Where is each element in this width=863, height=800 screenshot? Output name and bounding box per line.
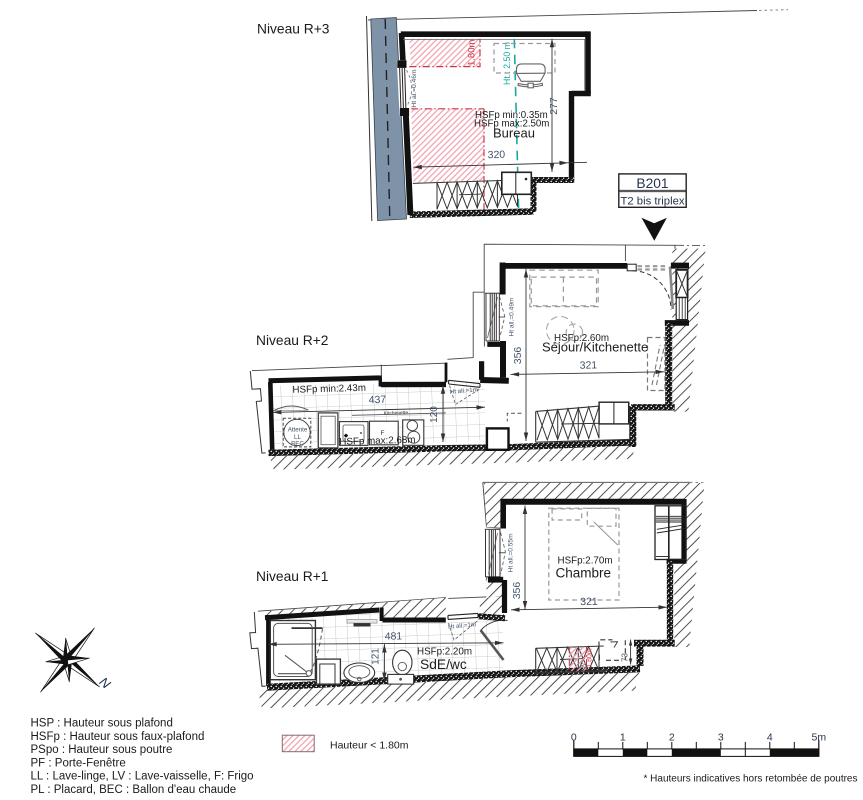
svg-text:277: 277 [548, 97, 560, 115]
svg-text:LL : Lave-linge, LV : Lave-vai: LL : Lave-linge, LV : Lave-vaisselle, F:… [31, 771, 254, 783]
svg-text:PF : Porte-Fenêtre: PF : Porte-Fenêtre [31, 757, 126, 769]
svg-text:B201: B201 [636, 176, 668, 191]
svg-text:Niveau R+1: Niveau R+1 [256, 569, 328, 584]
svg-text:321: 321 [580, 359, 598, 371]
svg-text:121: 121 [371, 648, 382, 665]
svg-text:73: 73 [620, 653, 629, 662]
svg-text:Attente: Attente [288, 426, 308, 433]
svg-text:5m: 5m [812, 732, 827, 744]
svg-text:321: 321 [580, 596, 598, 608]
svg-text:HSFp : Hauteur sous faux-plafo: HSFp : Hauteur sous faux-plafond [31, 731, 205, 743]
svg-text:Ht all.=0.55m: Ht all.=0.55m [508, 533, 515, 573]
svg-text:120: 120 [429, 406, 440, 423]
svg-text:Niveau R+3: Niveau R+3 [257, 22, 330, 37]
svg-text:HSP : Hauteur sous plafond: HSP : Hauteur sous plafond [31, 718, 173, 730]
svg-text:Kitchenette: Kitchenette [384, 410, 409, 417]
svg-text:320: 320 [487, 149, 505, 161]
svg-text:PL : Placard, BEC : Ballon d'e: PL : Placard, BEC : Ballon d'eau chaude [31, 784, 237, 796]
svg-text:HSFp max:2.68m: HSFp max:2.68m [339, 435, 416, 448]
svg-text:356: 356 [511, 582, 523, 600]
svg-text:1: 1 [620, 732, 626, 744]
svg-text:356: 356 [512, 347, 524, 365]
svg-text:152: 152 [577, 663, 588, 670]
svg-text:1.80m: 1.80m [587, 648, 594, 668]
svg-text:HSFp:2.20m: HSFp:2.20m [417, 647, 472, 658]
svg-text:Niveau R+2: Niveau R+2 [256, 333, 328, 348]
svg-text:Bureau: Bureau [493, 126, 535, 141]
svg-text:PSpo : Hauteur sous poutre: PSpo : Hauteur sous poutre [31, 744, 173, 756]
svg-text:Hauteur < 1.80m: Hauteur < 1.80m [330, 740, 409, 752]
svg-text:SdE/wc: SdE/wc [420, 657, 467, 672]
svg-text:4: 4 [767, 732, 773, 744]
svg-text:Ht al.=0.46m: Ht al.=0.46m [411, 69, 418, 108]
svg-text:BEC: BEC [291, 440, 304, 447]
svg-text:437: 437 [369, 394, 387, 406]
svg-text:Chambre: Chambre [556, 566, 612, 581]
svg-text:0: 0 [571, 732, 577, 744]
svg-text:3: 3 [718, 732, 724, 744]
svg-text:2: 2 [669, 732, 675, 744]
svg-text:T2 bis triplex: T2 bis triplex [620, 195, 684, 207]
svg-text:Ht all.=0.49m: Ht all.=0.49m [509, 297, 516, 337]
svg-text:HSFp min:2.43m: HSFp min:2.43m [292, 383, 366, 396]
svg-text:Ht.: 2.50 m: Ht.: 2.50 m [502, 42, 512, 85]
svg-text:481: 481 [385, 630, 403, 642]
svg-text:Séjour/Kitchenette: Séjour/Kitchenette [542, 339, 648, 354]
svg-text:* Hauteurs indicatives hors re: * Hauteurs indicatives hors retombée de … [643, 774, 857, 785]
svg-text:1.80m: 1.80m [467, 40, 478, 66]
